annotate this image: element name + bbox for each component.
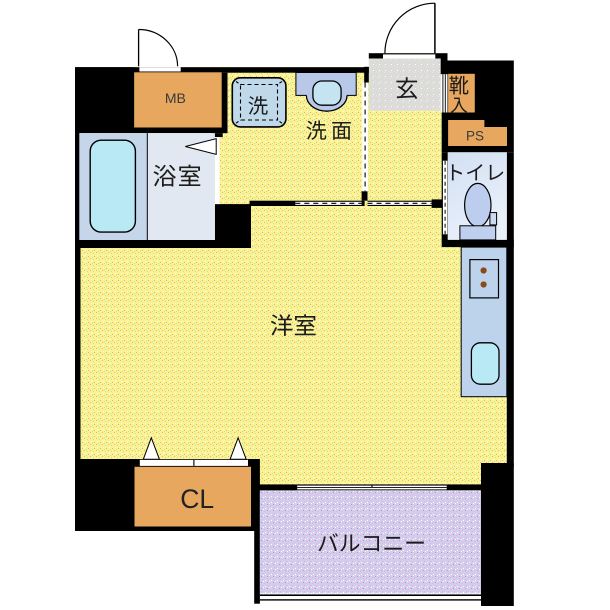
svg-text:CL: CL — [180, 484, 214, 514]
svg-text:PS: PS — [466, 128, 484, 143]
svg-text:MB: MB — [165, 90, 186, 106]
